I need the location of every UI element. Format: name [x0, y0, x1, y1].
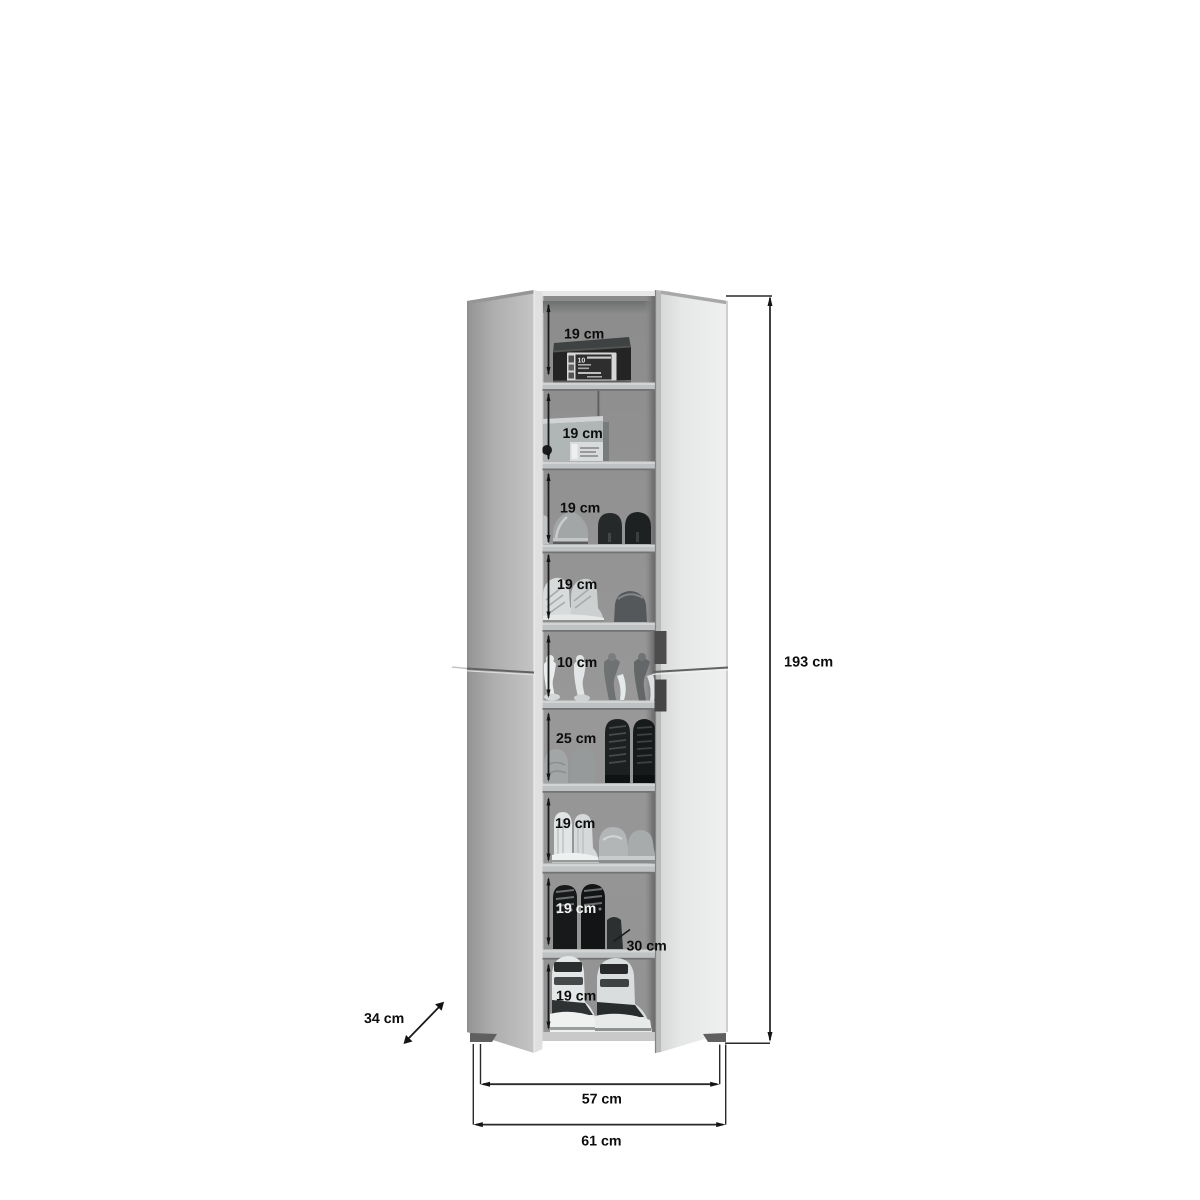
- svg-text:25 cm: 25 cm: [556, 731, 596, 747]
- svg-text:19 cm: 19 cm: [557, 577, 597, 593]
- svg-text:19 cm: 19 cm: [556, 901, 596, 917]
- svg-text:34 cm: 34 cm: [364, 1011, 404, 1027]
- svg-text:19 cm: 19 cm: [560, 501, 600, 517]
- svg-text:19 cm: 19 cm: [563, 426, 603, 442]
- svg-text:19 cm: 19 cm: [564, 327, 604, 343]
- svg-text:19 cm: 19 cm: [556, 989, 596, 1005]
- svg-text:61 cm: 61 cm: [581, 1133, 621, 1149]
- svg-text:19 cm: 19 cm: [555, 816, 595, 832]
- svg-text:30 cm: 30 cm: [627, 939, 667, 955]
- svg-text:10 cm: 10 cm: [557, 655, 597, 671]
- svg-text:193 cm: 193 cm: [784, 655, 833, 671]
- svg-text:10: 10: [578, 358, 586, 365]
- svg-text:57 cm: 57 cm: [582, 1091, 622, 1107]
